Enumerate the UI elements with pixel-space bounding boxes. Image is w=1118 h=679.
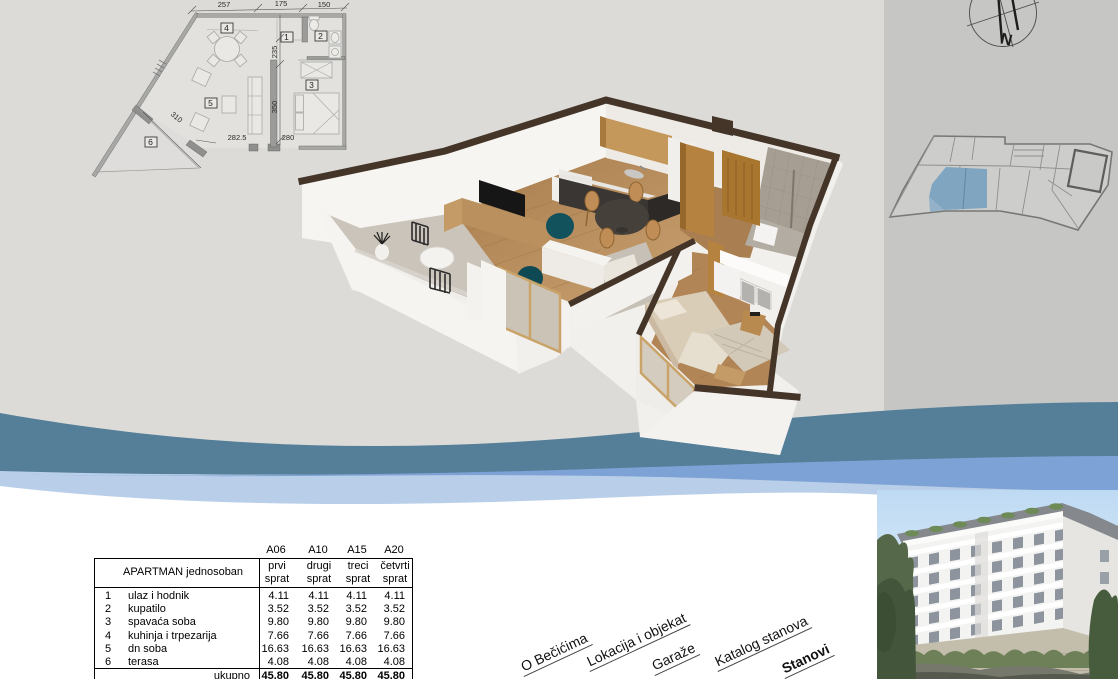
svg-text:175: 175 [275, 0, 288, 8]
svg-text:4: 4 [224, 23, 229, 33]
svg-text:3: 3 [309, 80, 314, 90]
svg-text:6: 6 [148, 137, 153, 147]
svg-text:280: 280 [282, 133, 295, 142]
svg-text:350: 350 [270, 101, 279, 114]
svg-text:2: 2 [318, 31, 323, 41]
svg-text:150: 150 [318, 0, 331, 9]
svg-text:5: 5 [208, 98, 213, 108]
svg-text:282.5: 282.5 [228, 133, 247, 142]
svg-text:1: 1 [284, 32, 289, 42]
svg-text:235: 235 [270, 46, 279, 59]
svg-text:257: 257 [218, 0, 231, 9]
